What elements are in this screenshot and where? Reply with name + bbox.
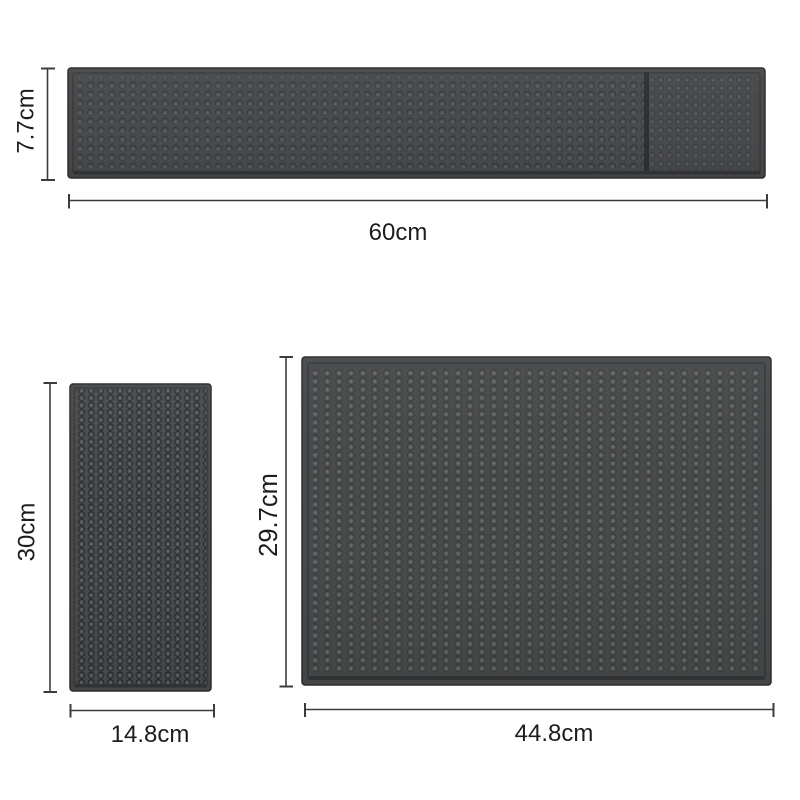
svg-text:14.8cm: 14.8cm [111,721,190,748]
svg-text:7.7cm: 7.7cm [13,88,40,153]
svg-text:44.8cm: 44.8cm [515,720,594,747]
svg-text:60cm: 60cm [369,219,428,246]
svg-text:30cm: 30cm [14,503,41,562]
svg-text:29.7cm: 29.7cm [255,473,283,557]
